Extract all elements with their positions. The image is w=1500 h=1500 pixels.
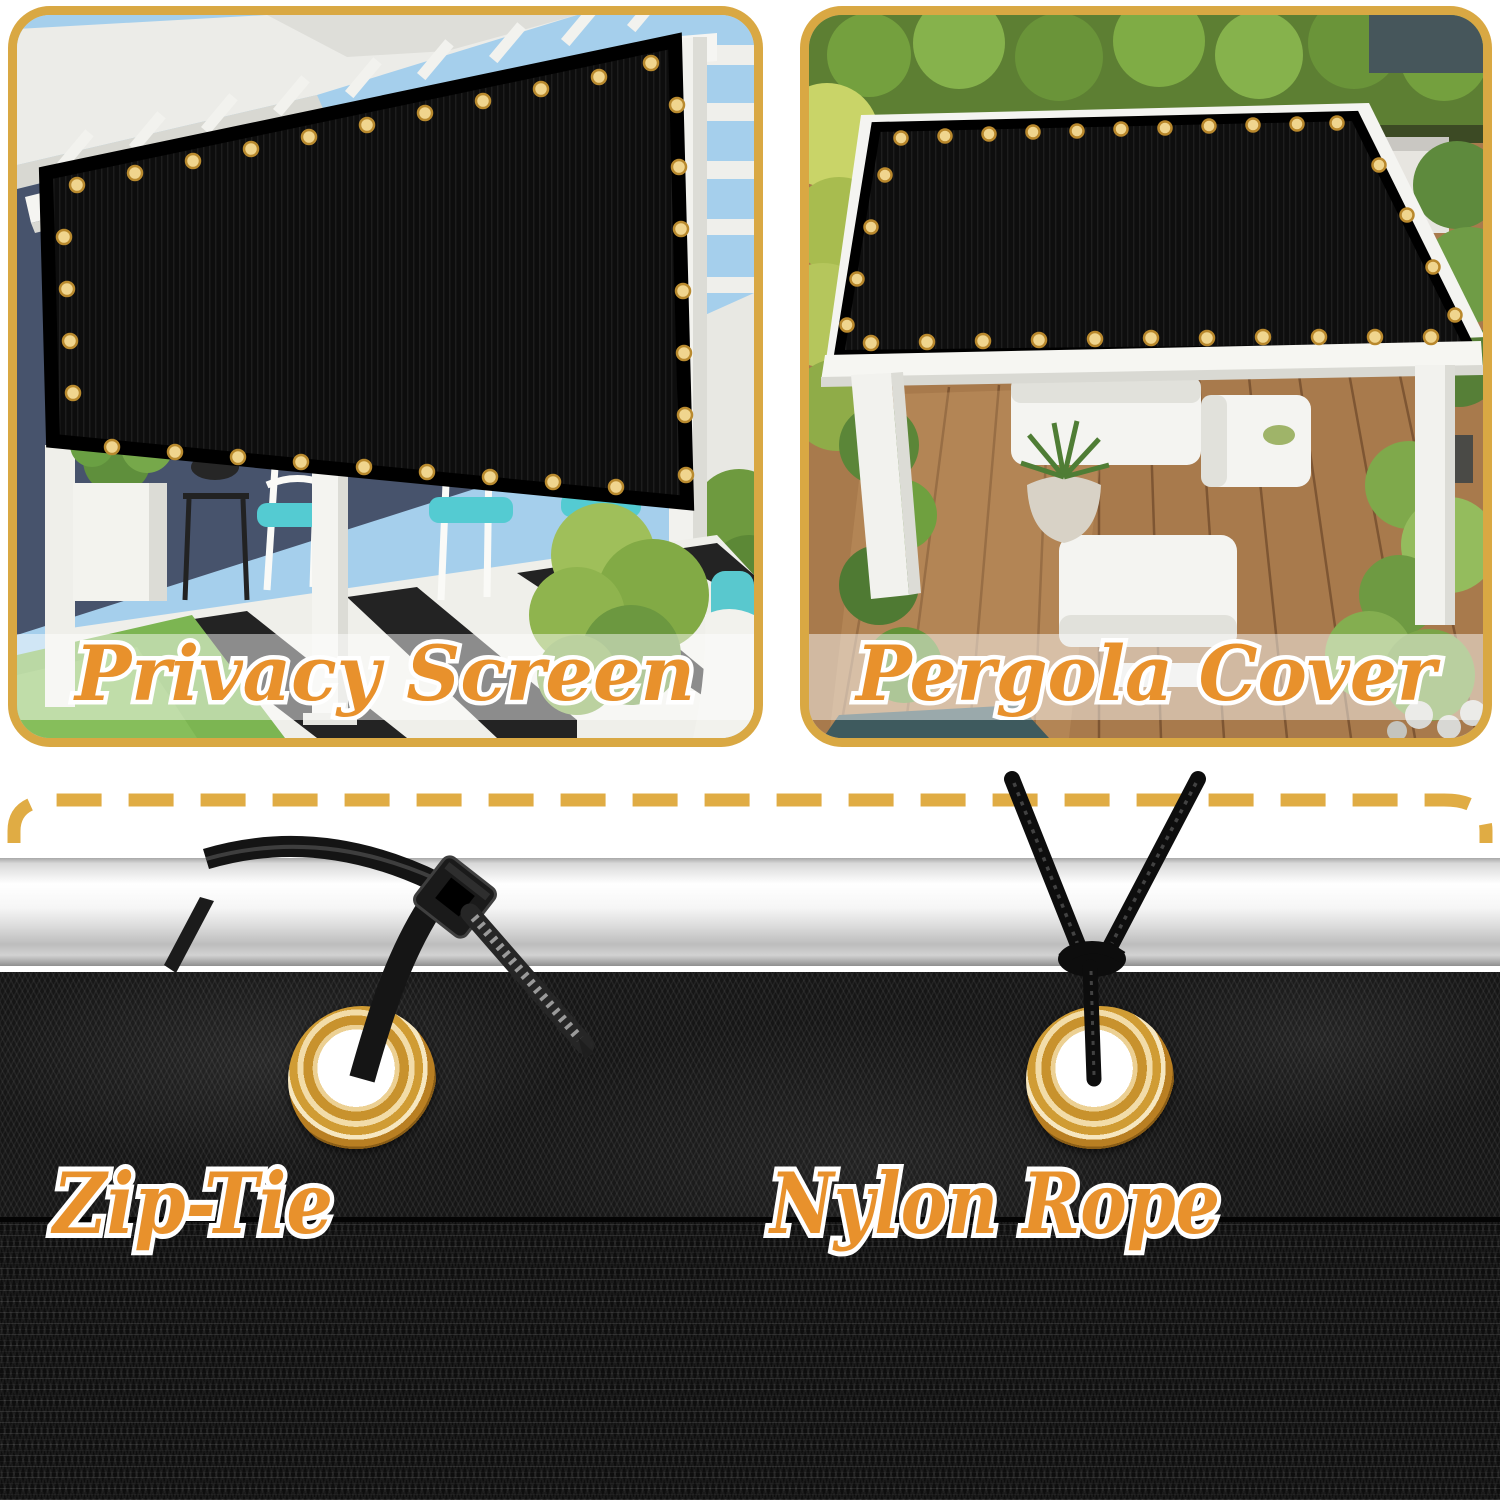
privacy-screen-label: Privacy Screen: [73, 634, 695, 718]
pergola-cover-label: Pergola Cover: [854, 634, 1441, 718]
mesh-hem-band: [0, 972, 1500, 1217]
caption-band: Pergola Cover: [809, 634, 1483, 720]
grommet-icon: [1026, 1006, 1174, 1154]
caption: Pergola Cover: [809, 634, 1483, 720]
mounting-pole: [0, 858, 1500, 966]
privacy-screen-photo: [17, 15, 754, 738]
privacy-screen-panel: Privacy Screen: [8, 6, 763, 747]
pergola-cover-panel: Pergola Cover: [800, 6, 1492, 747]
mesh-knit-band: [0, 1217, 1500, 1500]
product-image: Privacy Screen: [0, 0, 1500, 1500]
shade-mesh-fabric: [0, 972, 1500, 1500]
caption-band: Privacy Screen: [17, 634, 754, 720]
pergola-cover-photo: [809, 15, 1483, 738]
caption: Privacy Screen: [17, 634, 754, 720]
grommet-icon: [288, 1006, 436, 1154]
